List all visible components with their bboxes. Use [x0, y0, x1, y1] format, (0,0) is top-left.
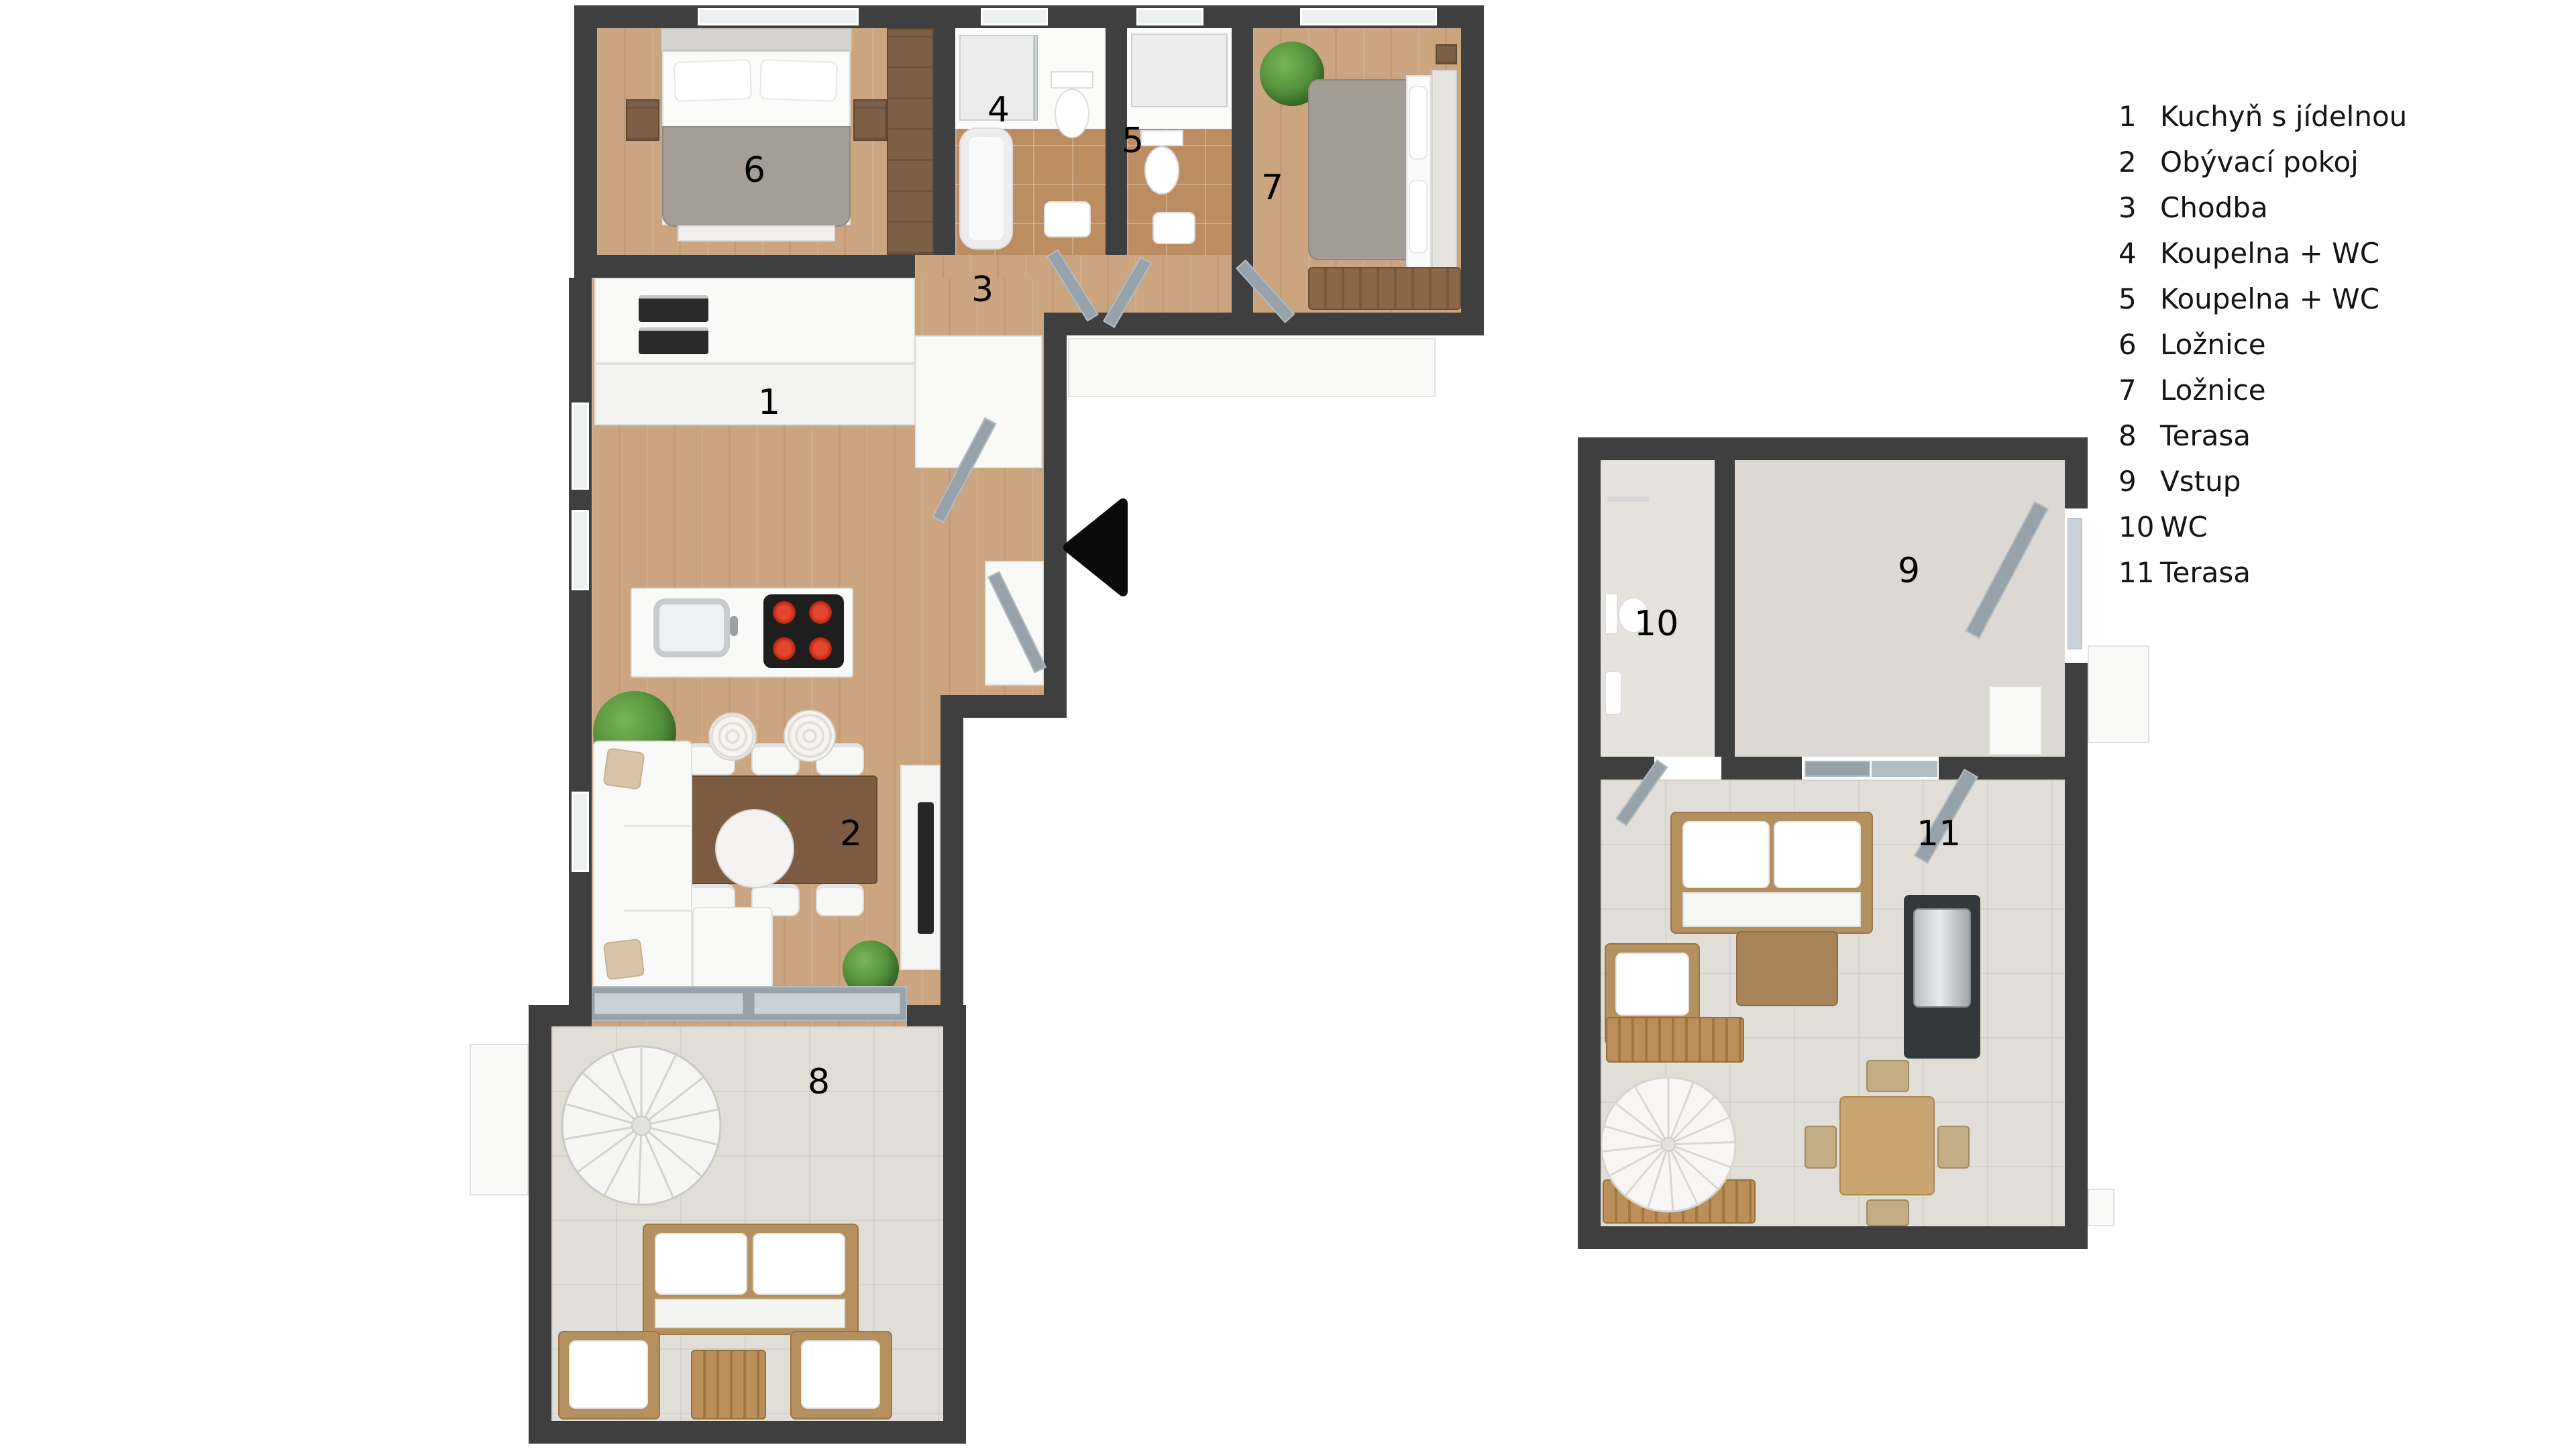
room-label-7: 7	[1261, 168, 1283, 208]
sofa-cushion-seam	[624, 825, 691, 827]
legend-number: 10	[2118, 511, 2160, 543]
legend-number: 4	[2118, 237, 2160, 270]
outdoor-armchair-cushion	[569, 1340, 648, 1409]
tv	[918, 802, 934, 934]
cooktop-burner	[773, 637, 796, 660]
oven	[639, 295, 708, 322]
room-label-3: 3	[971, 270, 994, 310]
bed-pillow	[1409, 180, 1428, 254]
shower-tray	[1131, 34, 1228, 107]
cooktop-burner	[809, 601, 832, 624]
wall-segment	[569, 278, 592, 1026]
wall-segment	[529, 1026, 551, 1444]
legend-item-10: 10WC	[2118, 504, 2407, 549]
wall-segment	[529, 1005, 586, 1026]
nightstand	[1436, 44, 1457, 64]
wall-segment	[1578, 437, 2088, 460]
patio-chair	[1866, 1199, 1909, 1226]
outdoor-coffee-table	[691, 1350, 766, 1419]
wall-segment	[1578, 437, 1601, 1249]
toilet-tank	[1051, 71, 1093, 89]
outdoor-armchair-cushion	[1615, 953, 1689, 1016]
legend-number: 5	[2118, 282, 2160, 315]
wall-segment	[574, 255, 915, 278]
legend-label: Vstup	[2160, 465, 2241, 498]
outdoor-sofa-cushion	[1774, 821, 1861, 888]
legend: 1Kuchyň s jídelnou 2Obývací pokoj 3Chodb…	[2118, 93, 2407, 595]
wall-segment	[1461, 5, 1484, 335]
outdoor-sofa-cushion	[655, 1233, 747, 1295]
wall-segment	[2065, 663, 2088, 1249]
bed-pillow	[674, 59, 752, 102]
legend-number: 2	[2118, 146, 2160, 178]
room-label-8: 8	[808, 1062, 830, 1102]
kitchen-sink	[653, 598, 730, 657]
room-label-2: 2	[840, 814, 862, 854]
wall-segment	[941, 718, 963, 1026]
window	[1300, 8, 1437, 25]
legend-number: 7	[2118, 374, 2160, 407]
legend-item-3: 3Chodba	[2118, 184, 2407, 230]
window	[698, 8, 859, 25]
outdoor-sofa-seat	[1682, 892, 1861, 927]
legend-item-1: 1Kuchyň s jídelnou	[2118, 93, 2407, 139]
dining-chair	[816, 884, 864, 916]
wall-segment	[941, 695, 1067, 718]
sofa-pillow	[602, 747, 645, 790]
room-label-11: 11	[1917, 814, 1961, 854]
wall-segment	[907, 1005, 966, 1026]
grill-lid	[1913, 908, 1971, 1008]
legend-item-2: 2Obývací pokoj	[2118, 139, 2407, 184]
outdoor-coffee-table	[1736, 931, 1838, 1006]
cooktop-burner	[773, 601, 796, 624]
parasol-icon	[1595, 1071, 1741, 1218]
towel-rail	[1607, 496, 1649, 502]
window	[572, 510, 589, 590]
legend-number: 11	[2118, 556, 2160, 589]
exterior-corner-step	[2088, 1189, 2114, 1226]
legend-item-4: 4Koupelna + WC	[2118, 230, 2407, 276]
washbasin	[1044, 201, 1091, 237]
legend-item-11: 11Terasa	[2118, 549, 2407, 595]
sofa-pillow	[603, 938, 645, 980]
shower-glass	[1034, 35, 1038, 121]
legend-item-8: 8Terasa	[2118, 413, 2407, 458]
legend-label: Terasa	[2160, 419, 2251, 452]
washbasin	[1605, 671, 1622, 715]
wood-bench	[1308, 267, 1461, 310]
outdoor-sofa-cushion	[1682, 821, 1770, 888]
legend-item-9: 9Vstup	[2118, 458, 2407, 504]
sliding-door-glass	[594, 993, 743, 1014]
spiral-staircase-icon	[553, 1037, 730, 1214]
toilet-bowl	[1144, 146, 1179, 195]
floorplan-canvas: 1 2 3 4 5 6 7 8 9 10 11 1Kuchyň s jídeln…	[0, 0, 2576, 1449]
sofa-chaise	[692, 907, 773, 993]
patio-table	[1839, 1096, 1935, 1195]
pouf	[708, 712, 757, 761]
room-label-10: 10	[1634, 604, 1678, 644]
legend-number: 8	[2118, 419, 2160, 452]
legend-item-5: 5Koupelna + WC	[2118, 276, 2407, 321]
outdoor-armchair-cushion	[801, 1340, 880, 1409]
legend-label: Terasa	[2160, 556, 2251, 589]
coffee-table-round	[715, 809, 794, 888]
exterior-entry-landing	[2088, 645, 2149, 743]
wardrobe	[887, 28, 934, 255]
entry-cabinet	[1988, 686, 2042, 755]
window	[572, 792, 589, 872]
bed-headboard	[661, 28, 852, 51]
legend-label: Ložnice	[2160, 374, 2266, 407]
legend-label: Chodba	[2160, 191, 2268, 224]
oven	[639, 327, 708, 354]
room-label-6: 6	[743, 150, 765, 191]
patio-chair	[1866, 1060, 1909, 1092]
wall-segment	[2065, 437, 2088, 508]
window	[572, 402, 589, 490]
legend-label: Kuchyň s jídelnou	[2160, 100, 2407, 133]
exterior-landing-terrace	[470, 1044, 529, 1195]
kitchen-counter	[594, 364, 915, 425]
sofa-cushion-seam	[624, 910, 691, 912]
sliding-door-glass	[754, 993, 900, 1014]
toilet-bowl	[1055, 89, 1089, 138]
window	[981, 8, 1048, 25]
legend-item-7: 7Ložnice	[2118, 367, 2407, 413]
nightstand	[853, 99, 887, 141]
legend-label: Obývací pokoj	[2160, 146, 2359, 178]
entry-door-sidelight	[2068, 518, 2082, 649]
toilet-tank	[1605, 593, 1618, 635]
bed-pillow	[759, 59, 838, 102]
legend-number: 1	[2118, 100, 2160, 133]
nightstand	[626, 99, 659, 141]
bed-foot-bench	[678, 225, 835, 241]
toilet-tank	[1140, 130, 1183, 146]
outdoor-sofa-cushion	[753, 1233, 845, 1295]
room-label-5: 5	[1122, 121, 1144, 161]
wall-segment	[1721, 757, 1802, 780]
legend-label: Koupelna + WC	[2160, 282, 2379, 315]
direction-arrow-icon	[1061, 496, 1128, 598]
wall-segment	[943, 1026, 966, 1444]
sliding-door-panel	[1872, 761, 1937, 777]
legend-label: WC	[2160, 511, 2208, 543]
washbasin	[1152, 212, 1195, 244]
wall-segment	[1578, 1226, 2088, 1249]
exterior-step-hallway	[1068, 338, 1436, 397]
bed-headboard	[1432, 70, 1457, 291]
window	[1136, 8, 1203, 25]
legend-label: Koupelna + WC	[2160, 237, 2379, 270]
sliding-door-panel	[1805, 761, 1870, 777]
patio-chair	[1805, 1126, 1837, 1169]
legend-label: Ložnice	[2160, 328, 2266, 361]
legend-number: 6	[2118, 328, 2160, 361]
room-label-9: 9	[1898, 551, 1920, 591]
room-label-4: 4	[987, 90, 1010, 130]
bathtub	[959, 127, 1013, 250]
faucet-icon	[730, 616, 738, 636]
outdoor-sofa-seat	[655, 1299, 845, 1328]
patio-chair	[1937, 1126, 1970, 1169]
wall-segment	[934, 28, 955, 255]
wall-segment	[1715, 460, 1735, 757]
wall-segment	[574, 5, 597, 278]
room-label-1: 1	[758, 382, 780, 423]
sun-lounger	[1606, 1017, 1744, 1063]
wall-segment	[1939, 757, 2065, 780]
bed-pillow	[1409, 86, 1428, 160]
pouf	[784, 710, 836, 762]
cooktop-burner	[809, 637, 832, 660]
legend-item-6: 6Ložnice	[2118, 321, 2407, 367]
wall-segment	[529, 1421, 966, 1444]
legend-number: 9	[2118, 465, 2160, 498]
legend-number: 3	[2118, 191, 2160, 224]
